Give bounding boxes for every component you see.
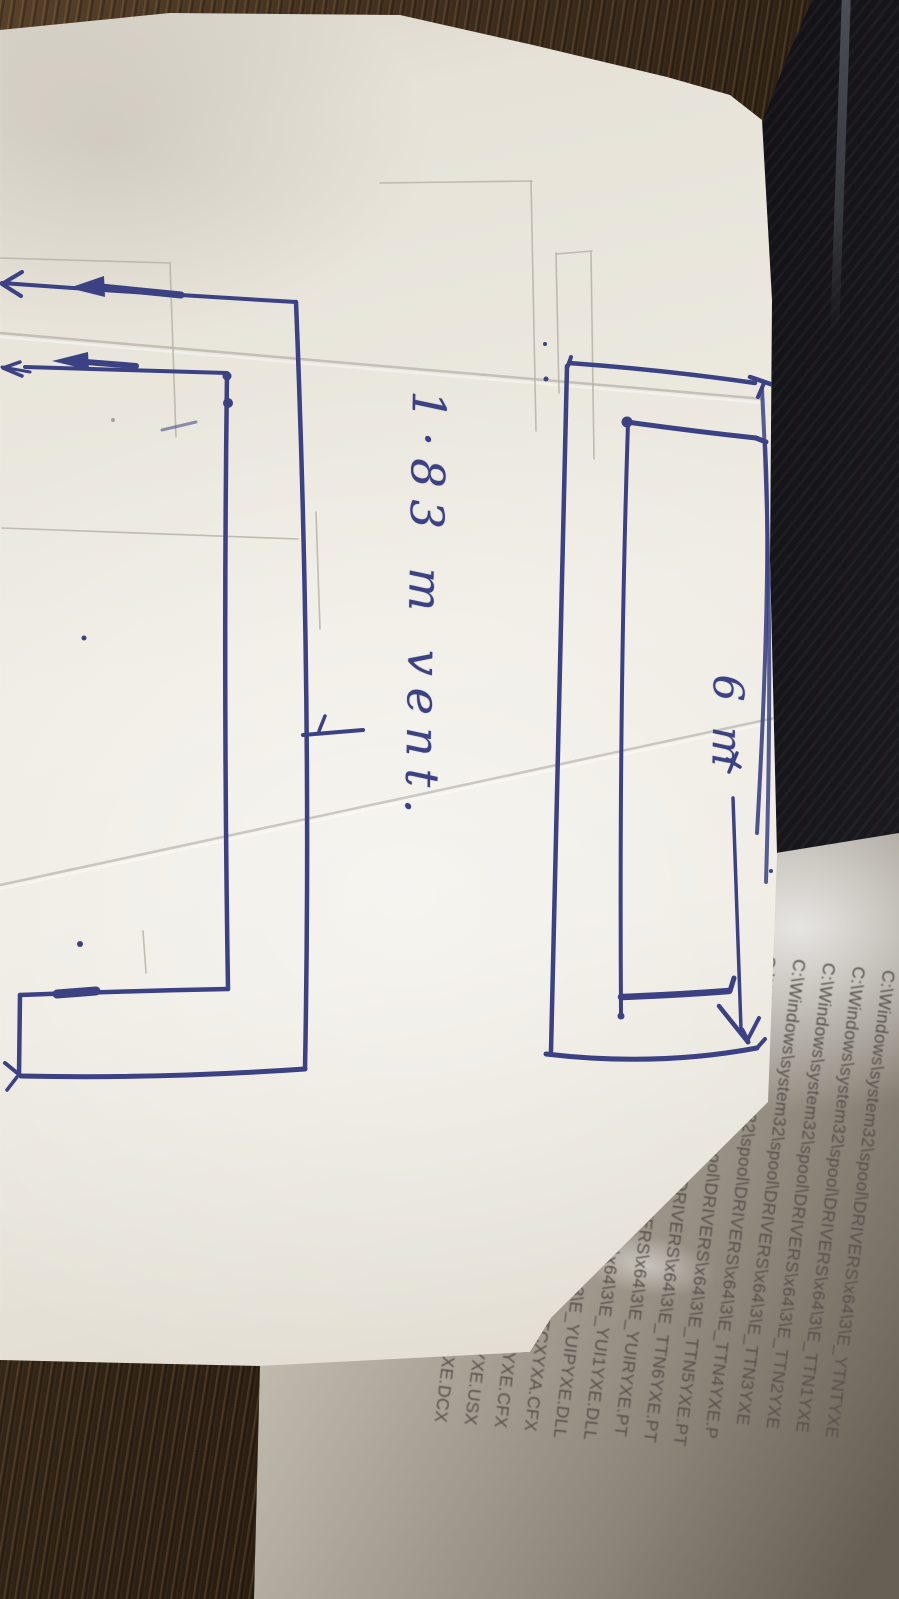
pencil-guides bbox=[0, 181, 594, 973]
printed-path-line: C:\Windows\system32\spool\DRIVERS\x64\3\… bbox=[785, 957, 815, 961]
printed-path-line: C:\Windows\system32\spool\DRIVERS\x64\3\… bbox=[844, 965, 874, 969]
left-duct-outline bbox=[2, 272, 363, 1090]
vent-dimension-label: 1·83 m vent. bbox=[394, 390, 456, 826]
paper-creases bbox=[0, 333, 779, 889]
photo-of-sketch: C:\Windows\system32\spool\DRIVERS\x64\3\… bbox=[0, 0, 899, 1599]
dimension-line-6m bbox=[719, 753, 759, 1042]
printed-path-line: C:\Windows\system32\spool\DRIVERS\x64\3\… bbox=[815, 961, 845, 965]
printed-path-line: C:\Windows\system32\spool\DRIVERS\x64\3\… bbox=[874, 968, 899, 972]
width-dimension-label: 6 m bbox=[702, 674, 753, 773]
